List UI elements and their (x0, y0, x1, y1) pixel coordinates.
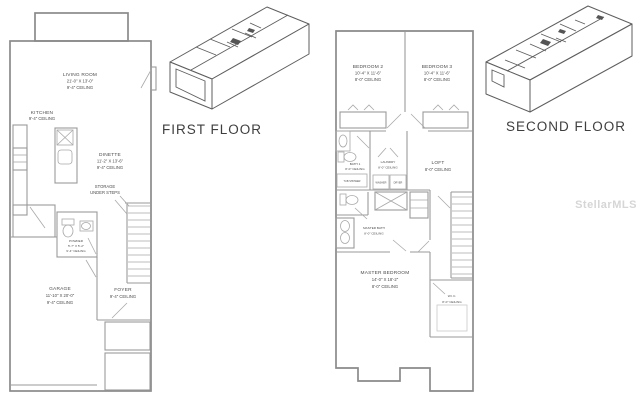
laundry-label: LAUNDRY (381, 160, 396, 164)
loft-ceiling: 8'-0" CEILING (425, 167, 451, 172)
bedroom2-label: BEDROOM 2 (353, 64, 384, 70)
floor-plan-drawing: LIVING ROOM 21'-0" X 13'-0" 9'-4" CEILIN… (0, 0, 640, 400)
garage-label: GARAGE (49, 286, 71, 292)
dinette-ceiling: 9'-4" CEILING (97, 165, 123, 170)
powder-label: POWDER (69, 239, 84, 243)
tub-shower-label: TUB SHOWER (344, 180, 361, 183)
bath1-toilet-fixture (338, 152, 356, 162)
stellar-mls-watermark: StellarMLS (575, 199, 637, 211)
wic-label: W.I.C. (448, 294, 457, 298)
powder-ceiling: 9'-4" CEILING (66, 249, 86, 253)
sink-fixture (80, 221, 93, 231)
toilet-fixture (62, 219, 74, 237)
bedroom3-dims: 10'-4" X 11'-6" (424, 71, 451, 76)
foyer-label: FOYER (114, 287, 132, 293)
bedroom2-dims: 10'-4" X 11'-6" (355, 71, 382, 76)
living-room-label: LIVING ROOM (63, 72, 97, 78)
vanity-sinks-fixture (341, 221, 350, 244)
master-toilet-fixture (340, 194, 358, 205)
bath1-sink-fixture (336, 131, 350, 151)
dinette-label: DINETTE (99, 152, 121, 158)
first-floor-stairs (128, 206, 150, 276)
loft-label: LOFT (431, 160, 444, 166)
first-floor-isometric: FIRST FLOOR (162, 7, 309, 137)
bath1-ceiling: 8'-0" CEILING (345, 167, 365, 171)
living-room-ceiling: 9'-4" CEILING (67, 85, 93, 90)
second-floor-isometric: SECOND FLOOR (486, 6, 632, 134)
first-floor-labels: LIVING ROOM 21'-0" X 13'-0" 9'-4" CEILIN… (29, 72, 136, 305)
bedroom3-label: BEDROOM 3 (422, 64, 453, 70)
dryer-label: DRYER (394, 182, 403, 185)
powder-dims: 5'-7" X 5'-2" (68, 244, 84, 248)
garage-ceiling: 9'-4" CEILING (47, 300, 73, 305)
storage-label-1: STORAGE (95, 184, 116, 189)
living-room-dims: 21'-0" X 13'-0" (67, 79, 94, 84)
garage-dims: 11'-10" X 20'-0" (46, 293, 75, 298)
floor-plan-sheet: LIVING ROOM 21'-0" X 13'-0" 9'-4" CEILIN… (0, 0, 640, 400)
master-bath-ceiling: 8'-0" CEILING (364, 232, 384, 236)
bedroom3-ceiling: 8'-0" CEILING (424, 77, 450, 82)
first-floor-walls (10, 13, 156, 391)
second-floor-walls (336, 31, 473, 391)
laundry-ceiling: 8'-0" CEILING (378, 166, 398, 170)
dinette-dims: 11'-2" X 13'-6" (97, 159, 124, 164)
master-bedroom-ceiling: 8'-0" CEILING (372, 284, 398, 289)
master-bedroom-label: MASTER BEDROOM (361, 270, 410, 276)
bath1-label: BATH 1 (350, 162, 361, 166)
second-floor-title: SECOND FLOOR (506, 119, 626, 134)
kitchen-ceiling: 9'-4" CEILING (29, 116, 55, 121)
storage-label-2: UNDER STEPS (90, 190, 120, 195)
second-floor-plan: BEDROOM 2 10'-4" X 11'-6" 8'-0" CEILING … (336, 31, 473, 391)
master-bath-label: MASTER BATH (363, 226, 385, 230)
first-floor-plan: LIVING ROOM 21'-0" X 13'-0" 9'-4" CEILIN… (10, 13, 156, 391)
washer-label: WASHER (376, 182, 387, 185)
wic-ceiling: 8'-0" CEILING (442, 300, 462, 304)
foyer-ceiling: 9'-4" CEILING (110, 294, 136, 299)
master-bedroom-dims: 14'-0" X 18'-2" (372, 277, 399, 282)
second-floor-stairs (452, 197, 472, 274)
first-floor-title: FIRST FLOOR (162, 122, 262, 137)
bedroom2-ceiling: 8'-0" CEILING (355, 77, 381, 82)
second-floor-labels: BEDROOM 2 10'-4" X 11'-6" 8'-0" CEILING … (344, 64, 463, 304)
